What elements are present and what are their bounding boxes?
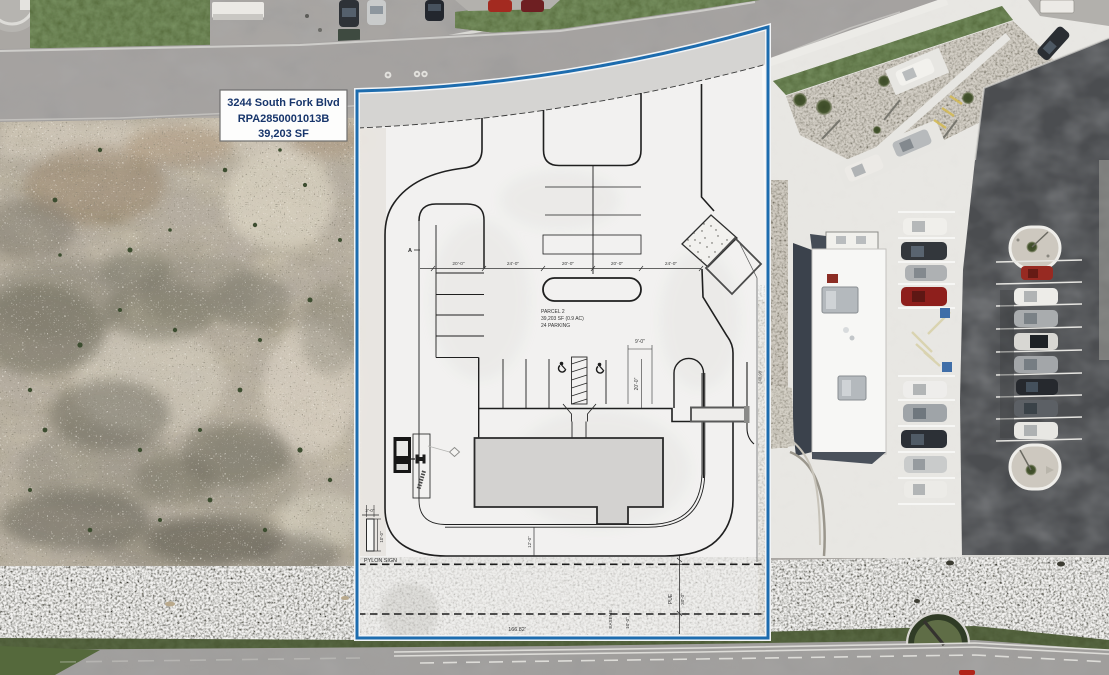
svg-text:2'-0": 2'-0" — [365, 508, 375, 513]
svg-text:9'-0": 9'-0" — [635, 339, 645, 345]
svg-text:24'-0": 24'-0" — [665, 261, 678, 267]
svg-text:166.82': 166.82' — [508, 627, 526, 633]
svg-text:RPA2850001013B: RPA2850001013B — [238, 113, 330, 125]
svg-text:EASEME: EASEME — [608, 609, 613, 628]
svg-text:20'-0": 20'-0" — [452, 261, 465, 267]
svg-text:12'-0": 12'-0" — [527, 536, 532, 548]
svg-text:A: A — [408, 248, 412, 254]
svg-text:PUE: PUE — [668, 593, 674, 604]
svg-text:10'-0": 10'-0" — [625, 617, 630, 629]
svg-text:20'-0": 20'-0" — [634, 377, 640, 390]
svg-text:30'-0": 30'-0" — [680, 593, 685, 605]
svg-text:PYLON SIGN: PYLON SIGN — [364, 558, 397, 564]
svg-text:10'-0": 10'-0" — [379, 531, 384, 543]
svg-text:20'-0": 20'-0" — [562, 261, 575, 267]
svg-text:248.98': 248.98' — [758, 370, 763, 384]
svg-text:24 PARKING: 24 PARKING — [541, 323, 570, 329]
svg-text:20'-0": 20'-0" — [611, 261, 624, 267]
svg-text:24'-0": 24'-0" — [507, 261, 520, 267]
svg-text:PARCEL 2: PARCEL 2 — [541, 309, 565, 315]
svg-text:39,203 SF (0.9 AC): 39,203 SF (0.9 AC) — [541, 316, 584, 322]
svg-text:39,203 SF: 39,203 SF — [258, 128, 309, 140]
svg-text:3244 South Fork Blvd: 3244 South Fork Blvd — [227, 97, 339, 109]
